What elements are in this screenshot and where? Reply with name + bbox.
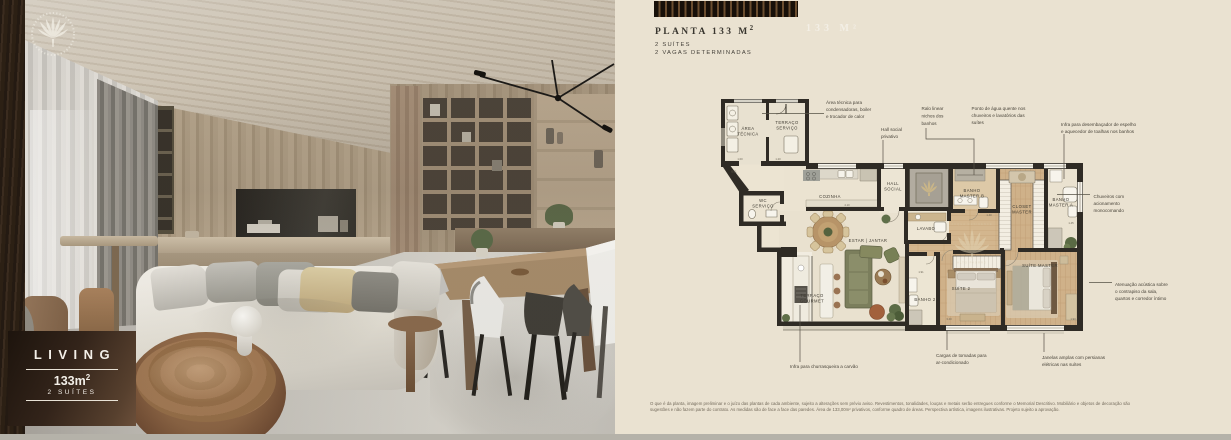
svg-text:SERVIÇO: SERVIÇO — [776, 125, 798, 130]
svg-text:CLOSET: CLOSET — [1012, 204, 1031, 209]
svg-text:ESTAR | JANTAR: ESTAR | JANTAR — [849, 238, 888, 243]
svg-text:COZINHA: COZINHA — [819, 194, 841, 199]
svg-text:ALTO PADRÃO: ALTO PADRÃO — [957, 259, 987, 264]
svg-text:SERVIÇO: SERVIÇO — [752, 203, 774, 208]
svg-text:WC: WC — [759, 198, 767, 203]
svg-text:SUÍTE 2: SUÍTE 2 — [952, 286, 971, 291]
svg-text:SOCIAL: SOCIAL — [884, 186, 902, 191]
svg-text:3.40: 3.40 — [946, 317, 952, 321]
svg-text:Ralo linearnichos dosbanhos: Ralo linearnichos dosbanhos — [922, 106, 945, 126]
svg-text:MASTER A: MASTER A — [1049, 202, 1073, 207]
svg-text:Ponto de água quente noschuvei: Ponto de água quente noschuveiros e lava… — [972, 106, 1027, 125]
svg-text:1.20: 1.20 — [775, 157, 781, 161]
svg-text:ACQUA RESIDENCE: ACQUA RESIDENCE — [951, 222, 992, 226]
svg-text:Atenuação acústica sobreo cont: Atenuação acústica sobreo contrapiso da … — [1115, 282, 1168, 301]
svg-text:MASTER: MASTER — [1012, 209, 1032, 214]
svg-text:1.93: 1.93 — [1070, 317, 1076, 321]
svg-text:BANHO: BANHO — [1053, 197, 1070, 202]
svg-text:Hall socialprivativo: Hall socialprivativo — [881, 127, 902, 139]
svg-text:Infra para churrasqueira a car: Infra para churrasqueira a carvão — [790, 364, 858, 369]
svg-text:TÉCNICA: TÉCNICA — [737, 131, 758, 136]
svg-text:4.10: 4.10 — [844, 203, 850, 207]
svg-text:LAVABO: LAVABO — [917, 226, 936, 231]
svg-text:1.91: 1.91 — [918, 270, 924, 274]
svg-text:TERRAÇO: TERRAÇO — [800, 293, 824, 298]
svg-text:Área técnica paracondensadoras: Área técnica paracondensadoras, boilere … — [826, 99, 872, 119]
svg-text:BANHO 2: BANHO 2 — [914, 297, 935, 302]
svg-text:Janelas amplas com persianasel: Janelas amplas com persianaselétricas na… — [1042, 355, 1106, 367]
svg-text:Chuveiros comacionamentomonoco: Chuveiros comacionamentomonocomando — [1094, 194, 1125, 213]
svg-text:1.00: 1.00 — [737, 157, 743, 161]
svg-text:Cargas de tomadas paraar-condi: Cargas de tomadas paraar-condicionado — [936, 353, 987, 365]
svg-text:MASTER B: MASTER B — [960, 193, 985, 198]
svg-text:SUÍTE MASTER: SUÍTE MASTER — [1022, 263, 1058, 268]
svg-text:GOURMET: GOURMET — [800, 298, 824, 303]
svg-text:0.91: 0.91 — [731, 170, 737, 174]
svg-text:TERRAÇO: TERRAÇO — [775, 120, 799, 125]
svg-text:1.40: 1.40 — [986, 213, 992, 217]
svg-text:ÁREA: ÁREA — [741, 126, 754, 131]
svg-text:BANHO: BANHO — [964, 188, 981, 193]
svg-text:Infra para desembaçador de esp: Infra para desembaçador de espelhoe aque… — [1061, 122, 1137, 134]
svg-text:1.45: 1.45 — [1068, 221, 1074, 225]
svg-text:HALL: HALL — [887, 181, 899, 186]
